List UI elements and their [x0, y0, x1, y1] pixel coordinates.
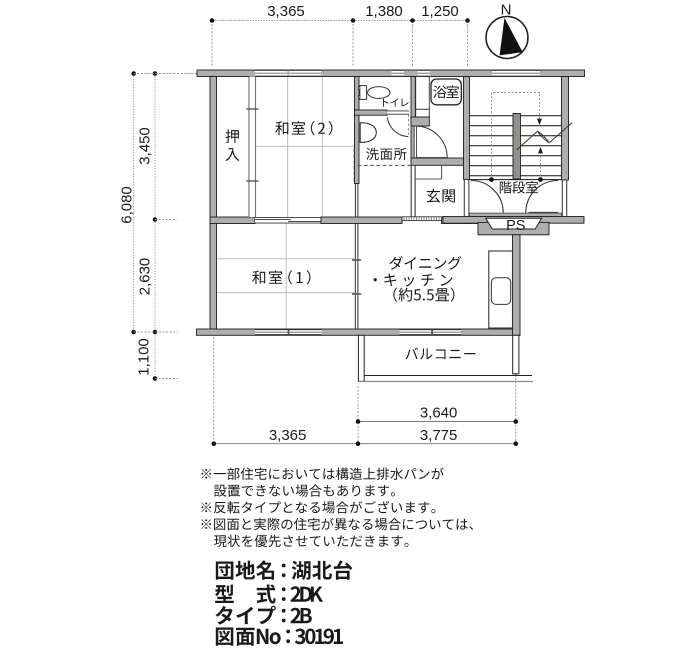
svg-text:2,630: 2,630 — [137, 258, 154, 296]
svg-text:3,640: 3,640 — [420, 405, 458, 422]
svg-text:3,365: 3,365 — [269, 427, 307, 444]
svg-text:6,080: 6,080 — [119, 186, 136, 224]
svg-text:N: N — [501, 2, 512, 19]
svg-text:1,380: 1,380 — [365, 3, 403, 20]
svg-text:1,250: 1,250 — [421, 3, 459, 20]
svg-text:PS: PS — [506, 218, 525, 234]
svg-text:3,365: 3,365 — [267, 3, 305, 20]
svg-text:3,450: 3,450 — [137, 127, 154, 165]
svg-text:1,100: 1,100 — [136, 338, 153, 376]
svg-text:3,775: 3,775 — [420, 427, 458, 444]
